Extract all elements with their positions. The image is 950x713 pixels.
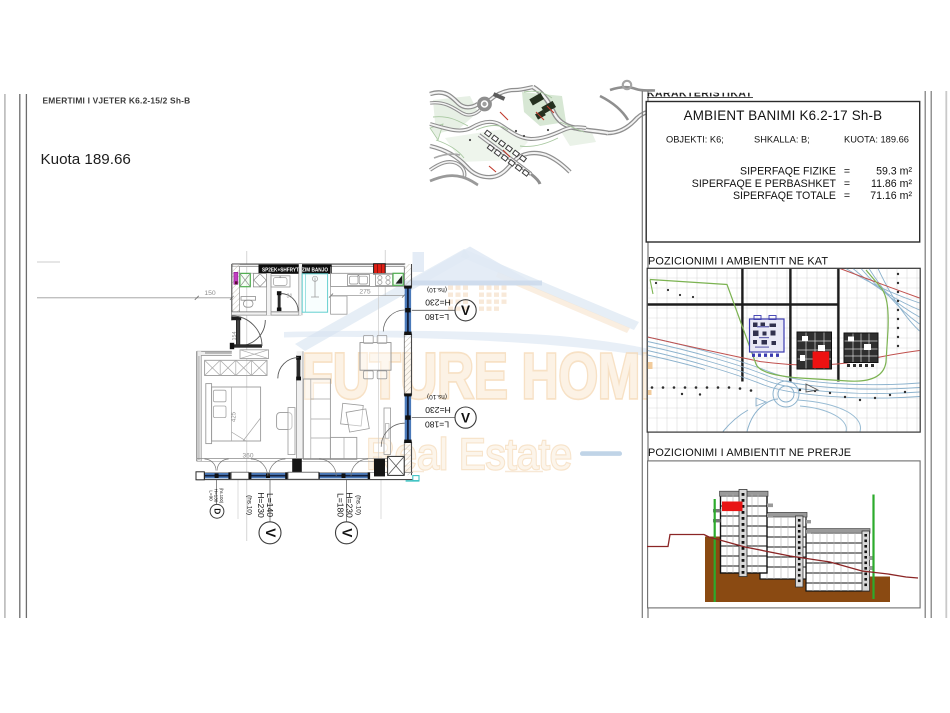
svg-text:=: = <box>844 166 850 178</box>
svg-text:(hs.10): (hs.10) <box>246 495 253 515</box>
svg-text:150: 150 <box>204 290 216 297</box>
svg-text:V: V <box>340 528 355 537</box>
svg-text:D: D <box>213 508 223 514</box>
svg-text:SIPERFAQE TOTALE: SIPERFAQE TOTALE <box>733 190 836 202</box>
svg-text:V: V <box>263 528 278 537</box>
svg-text:(hs.10): (hs.10) <box>427 393 447 400</box>
svg-text:L=140: L=140 <box>265 493 275 517</box>
svg-text:154: 154 <box>232 332 238 341</box>
svg-text:OBJEKTI: K6;: OBJEKTI: K6; <box>666 135 724 145</box>
svg-text:=: = <box>844 190 850 202</box>
svg-text:H=230: H=230 <box>425 405 451 415</box>
svg-text:V: V <box>461 303 470 318</box>
svg-text:H=130: H=130 <box>214 489 219 503</box>
svg-text:=: = <box>844 178 850 190</box>
svg-text:POZICIONIMI I AMBIENTIT NE KAT: POZICIONIMI I AMBIENTIT NE KAT <box>648 255 828 267</box>
svg-text:(hs.100): (hs.100) <box>219 488 224 504</box>
svg-text:71.16 m²: 71.16 m² <box>870 190 912 202</box>
svg-text:L=180: L=180 <box>335 493 345 517</box>
svg-text:275: 275 <box>359 288 371 295</box>
svg-text:31: 31 <box>287 294 293 300</box>
svg-text:SIPERFAQE E PERBASHKET: SIPERFAQE E PERBASHKET <box>692 178 837 190</box>
svg-text:SIPERFAQE FIZIKE: SIPERFAQE FIZIKE <box>740 166 836 178</box>
svg-text:59.3 m²: 59.3 m² <box>876 166 912 178</box>
svg-text:H=230: H=230 <box>345 492 355 518</box>
svg-text:KUOTA: 189.66: KUOTA: 189.66 <box>844 135 909 145</box>
svg-text:(hs.10): (hs.10) <box>354 495 361 515</box>
svg-text:SHKALLA: B;: SHKALLA: B; <box>754 135 810 145</box>
svg-text:H=230: H=230 <box>425 298 451 308</box>
svg-text:11.86 m²: 11.86 m² <box>871 178 912 190</box>
svg-text:POZICIONIMI I AMBIENTIT NE PRE: POZICIONIMI I AMBIENTIT NE PRERJE <box>648 447 851 459</box>
svg-text:SP2EK+SHFRYTEZIM BANJO: SP2EK+SHFRYTEZIM BANJO <box>262 268 328 274</box>
svg-text:Kuota 189.66: Kuota 189.66 <box>41 151 131 168</box>
svg-text:V: V <box>461 411 470 426</box>
svg-text:425: 425 <box>231 411 237 422</box>
svg-text:(hs.10): (hs.10) <box>427 286 447 293</box>
svg-text:AMBIENT BANIMI K6.2-17 Sh-B: AMBIENT BANIMI K6.2-17 Sh-B <box>684 108 883 123</box>
svg-text:L=180: L=180 <box>425 312 449 322</box>
svg-text:EMERTIMI I VJETER K6.2-15/2: EMERTIMI I VJETER K6.2-15/2 Sh-B <box>43 95 191 105</box>
svg-text:H=230: H=230 <box>256 492 266 518</box>
svg-text:L=90: L=90 <box>209 490 214 501</box>
svg-text:L=180: L=180 <box>425 419 449 429</box>
svg-text:KARAKTERISTIKAT: KARAKTERISTIKAT <box>647 89 753 100</box>
svg-text:FUTURE HOME: FUTURE HOME <box>302 340 674 412</box>
